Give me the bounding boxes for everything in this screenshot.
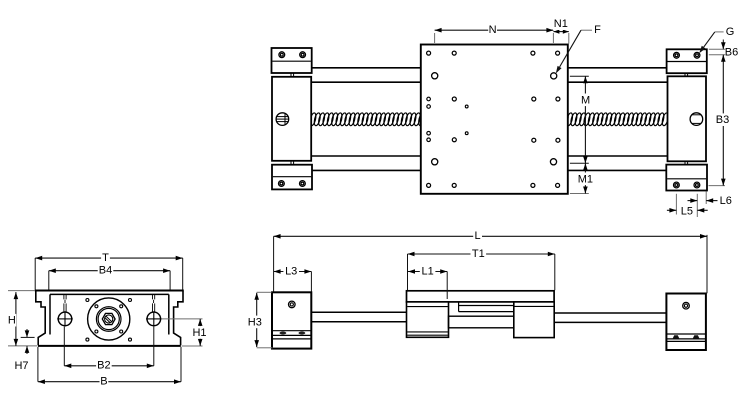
- svg-text:B2: B2: [97, 360, 110, 372]
- svg-text:M1: M1: [578, 173, 593, 185]
- svg-text:B6: B6: [725, 46, 738, 58]
- svg-text:H: H: [8, 315, 16, 327]
- svg-text:H3: H3: [248, 316, 262, 328]
- svg-text:T: T: [102, 252, 109, 264]
- svg-text:L5: L5: [681, 206, 693, 218]
- svg-text:N1: N1: [554, 18, 568, 30]
- svg-text:N: N: [489, 24, 497, 36]
- svg-text:L: L: [475, 230, 481, 242]
- svg-text:F: F: [594, 24, 601, 36]
- svg-text:H1: H1: [192, 327, 206, 339]
- svg-text:L6: L6: [720, 195, 732, 207]
- svg-text:H7: H7: [14, 360, 28, 372]
- svg-text:T1: T1: [472, 248, 485, 260]
- svg-text:L1: L1: [421, 266, 433, 278]
- svg-text:G: G: [726, 26, 735, 38]
- svg-text:M: M: [581, 94, 590, 106]
- svg-text:B: B: [100, 376, 107, 388]
- svg-text:B4: B4: [99, 265, 112, 277]
- svg-text:L3: L3: [285, 266, 297, 278]
- svg-text:B3: B3: [716, 114, 729, 126]
